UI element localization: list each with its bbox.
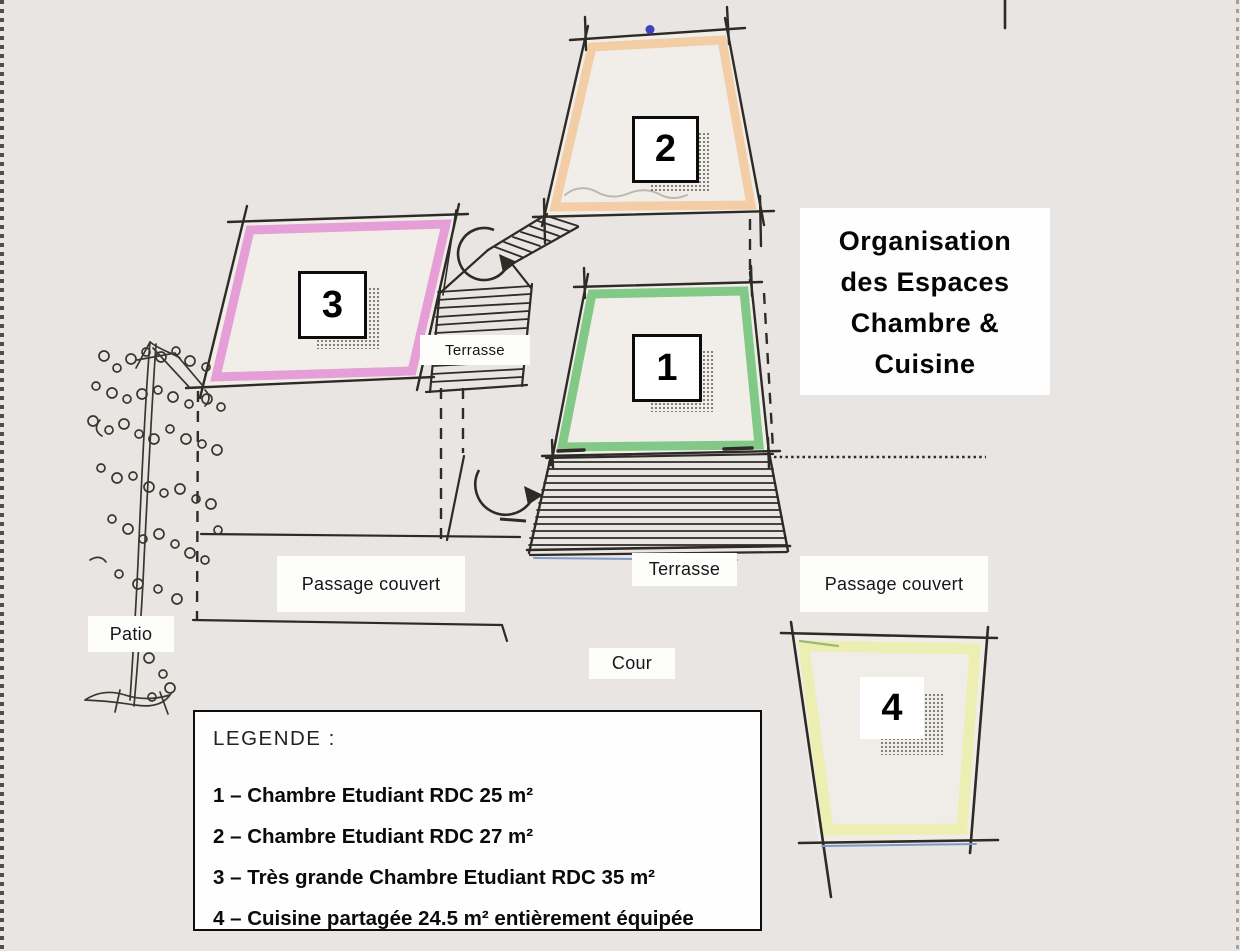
room-3-label: 3 xyxy=(298,271,367,339)
passage-couvert-left-label: Passage couvert xyxy=(277,556,465,612)
title-line: Chambre & xyxy=(800,303,1050,344)
legend-heading: LEGENDE : xyxy=(213,727,750,751)
title-box: Organisation des Espaces Chambre & Cuisi… xyxy=(800,208,1050,395)
room-1-label: 1 xyxy=(632,334,702,402)
passage-couvert-right-label: Passage couvert xyxy=(800,556,988,612)
legend-item: 2 – Chambre Etudiant RDC 27 m² xyxy=(213,825,750,849)
blue-dot-marker xyxy=(646,25,655,34)
lower-terrace-steps xyxy=(527,452,790,560)
circulation-arrow-upper xyxy=(458,228,517,280)
terrasse-upper-label: Terrasse xyxy=(420,335,530,365)
title-line: Organisation xyxy=(800,221,1050,262)
legend-item: 3 – Très grande Chambre Etudiant RDC 35 … xyxy=(213,866,750,890)
terrasse-lower-label: Terrasse xyxy=(632,553,737,586)
patio-label: Patio xyxy=(88,616,174,652)
title-line: des Espaces xyxy=(800,262,1050,303)
title-line: Cuisine xyxy=(800,344,1050,385)
legend-item: 1 – Chambre Etudiant RDC 25 m² xyxy=(213,784,750,808)
circulation-arrow-lower xyxy=(475,470,543,521)
tree-sketch xyxy=(85,342,225,714)
room-4-shape xyxy=(781,622,998,897)
legend-item: 4 – Cuisine partagée 24.5 m² entièrement… xyxy=(213,907,750,931)
legend: LEGENDE : 1 – Chambre Etudiant RDC 25 m²… xyxy=(193,710,762,931)
blue-accent-line xyxy=(822,844,976,846)
room-2-label: 2 xyxy=(632,116,699,183)
scanned-floor-plan: 2 3 1 4 Terrasse Terrasse Passage couver… xyxy=(0,0,1240,951)
room-4-label: 4 xyxy=(860,677,924,739)
cour-label: Cour xyxy=(589,648,675,679)
